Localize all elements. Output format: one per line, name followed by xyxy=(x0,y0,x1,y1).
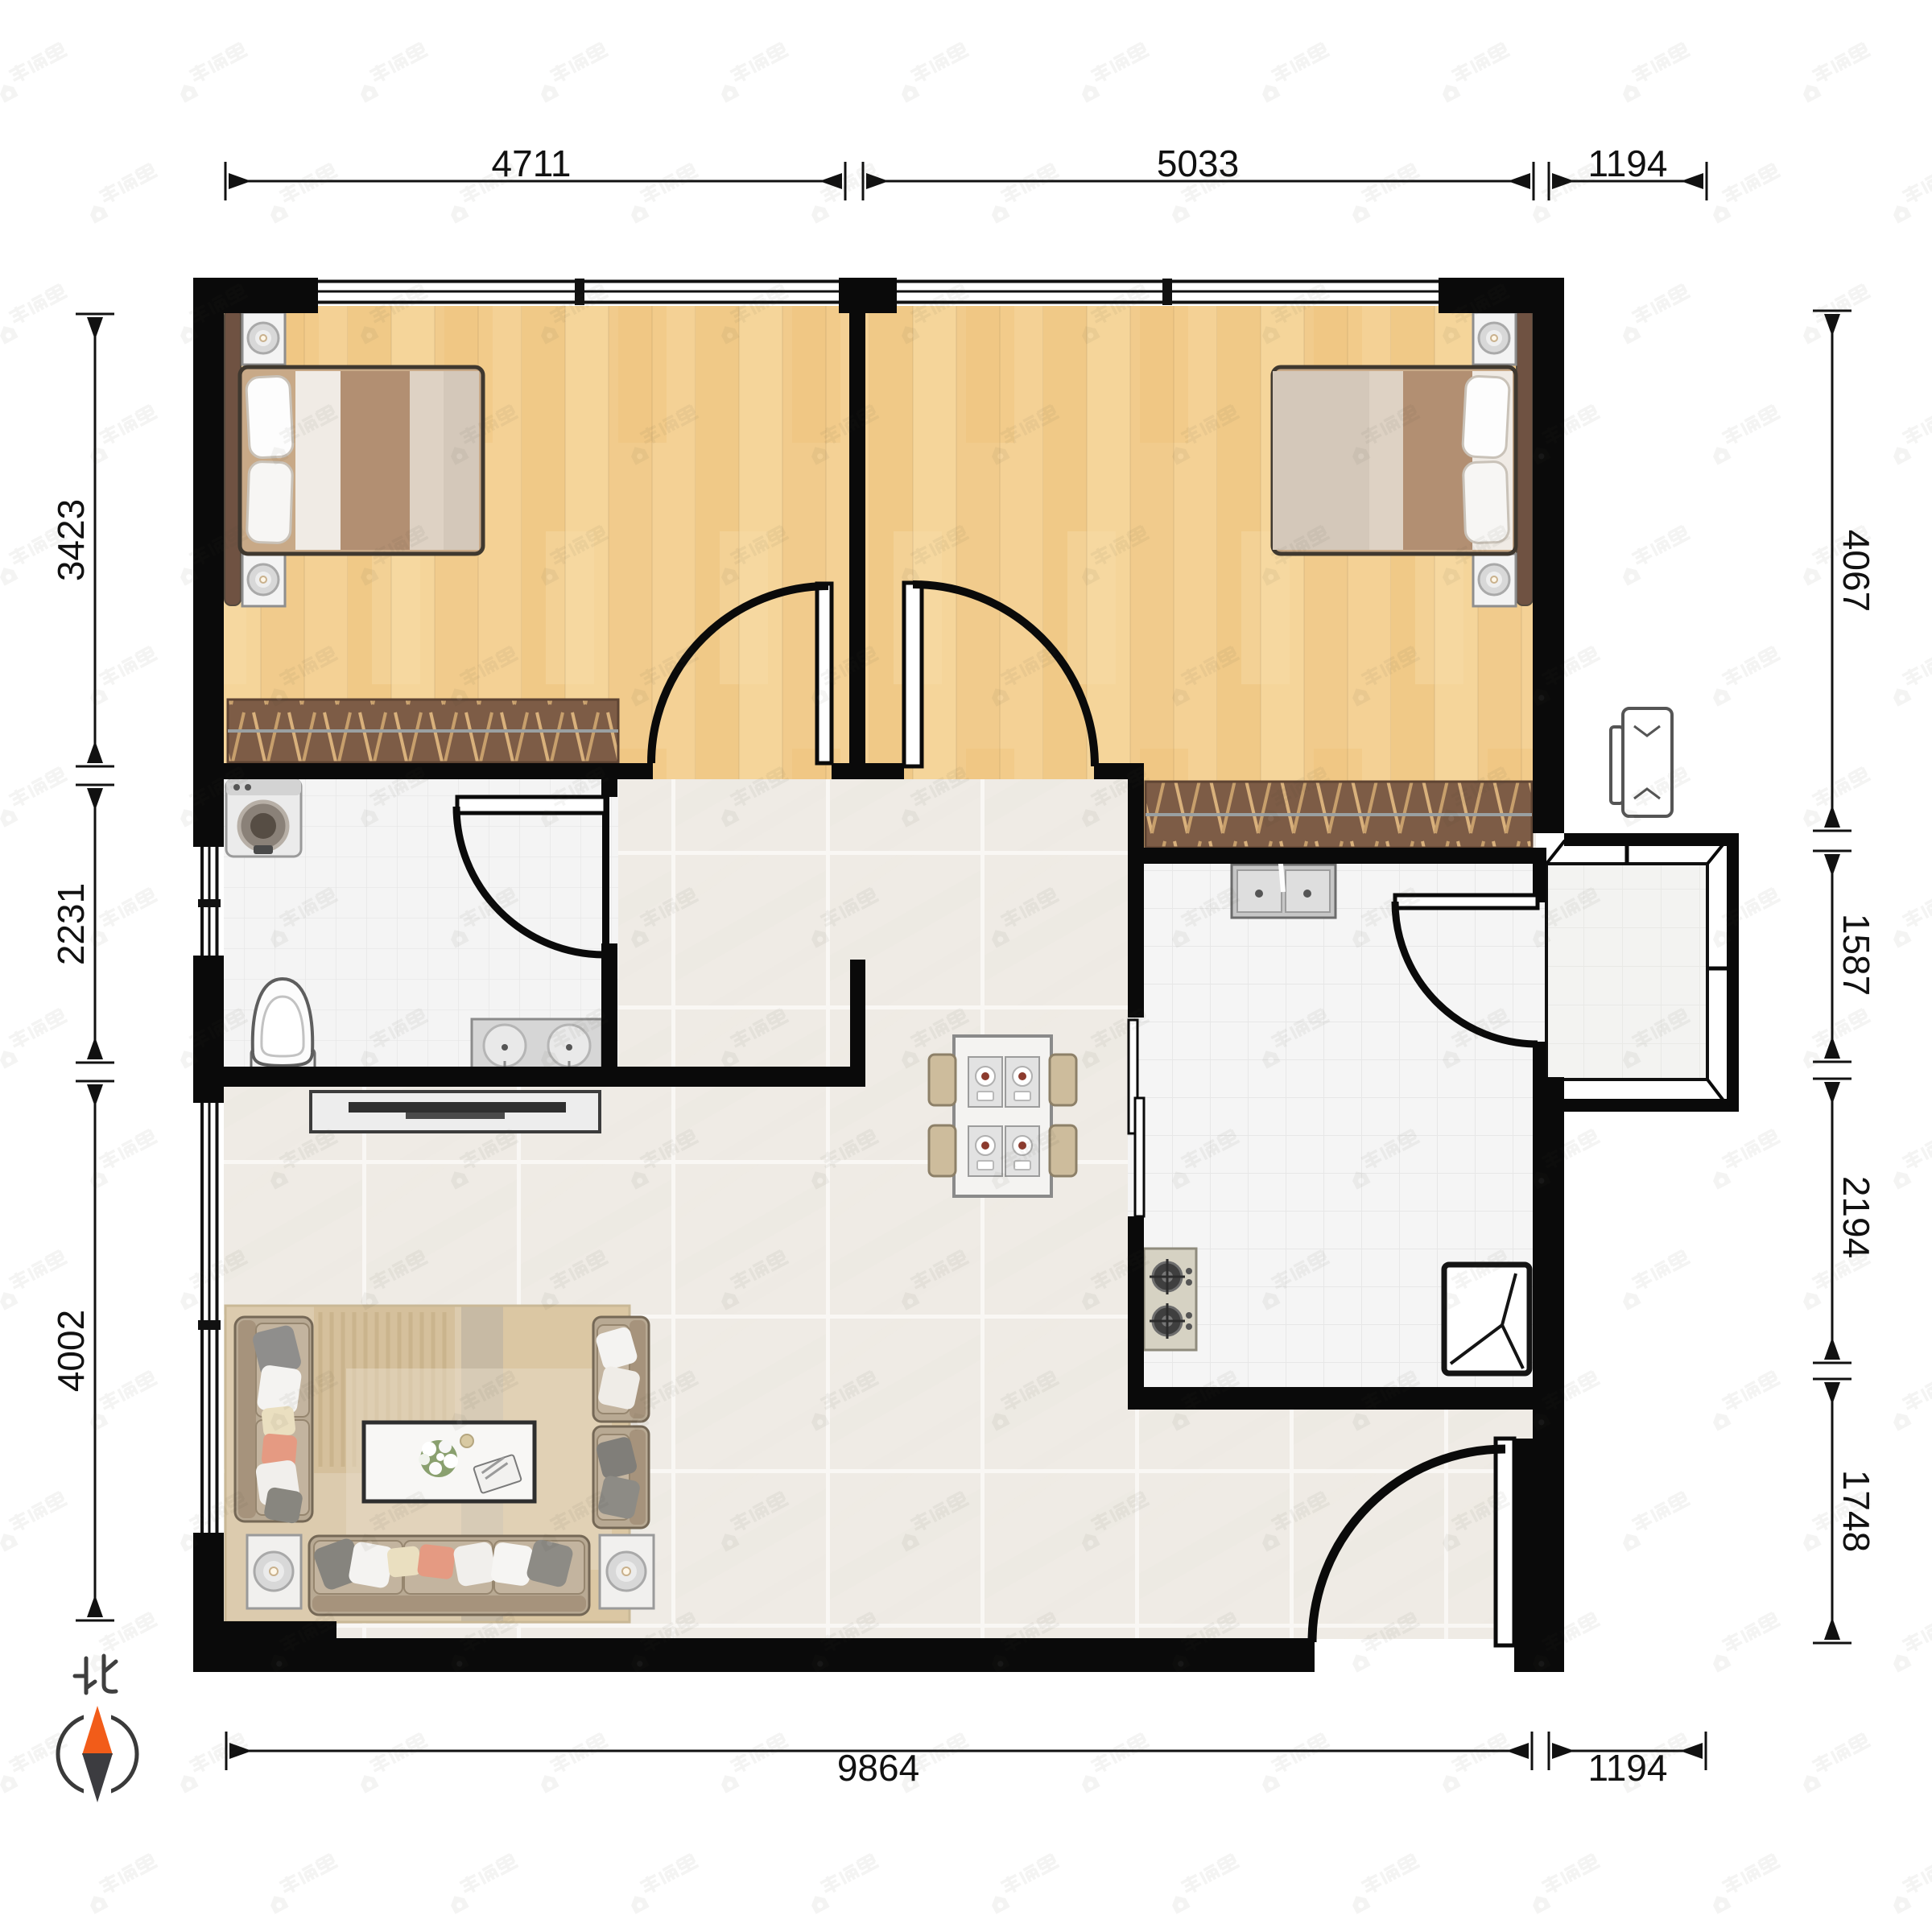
svg-text:5033: 5033 xyxy=(1157,142,1239,184)
svg-text:2194: 2194 xyxy=(1835,1176,1877,1258)
svg-text:2231: 2231 xyxy=(50,883,92,965)
svg-text:1194: 1194 xyxy=(1588,142,1668,184)
svg-text:1587: 1587 xyxy=(1835,914,1877,996)
svg-text:4002: 4002 xyxy=(50,1310,92,1392)
svg-text:3423: 3423 xyxy=(50,499,92,581)
